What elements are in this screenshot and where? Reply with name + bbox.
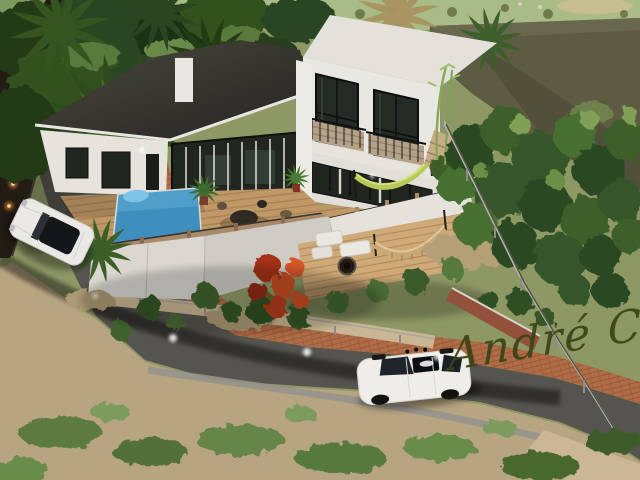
gable-window xyxy=(66,148,88,178)
plant-pot xyxy=(200,196,208,205)
fire-table xyxy=(339,258,356,275)
plant-pot xyxy=(293,184,300,192)
house-shadow xyxy=(80,266,380,334)
entry-door xyxy=(146,154,159,190)
gable-window xyxy=(102,152,130,188)
wall-lamp xyxy=(370,174,374,178)
scene-canvas xyxy=(0,0,640,480)
aerial-villa-render: André C xyxy=(0,0,640,480)
porch-lamp xyxy=(140,148,145,153)
chimney xyxy=(175,58,193,102)
